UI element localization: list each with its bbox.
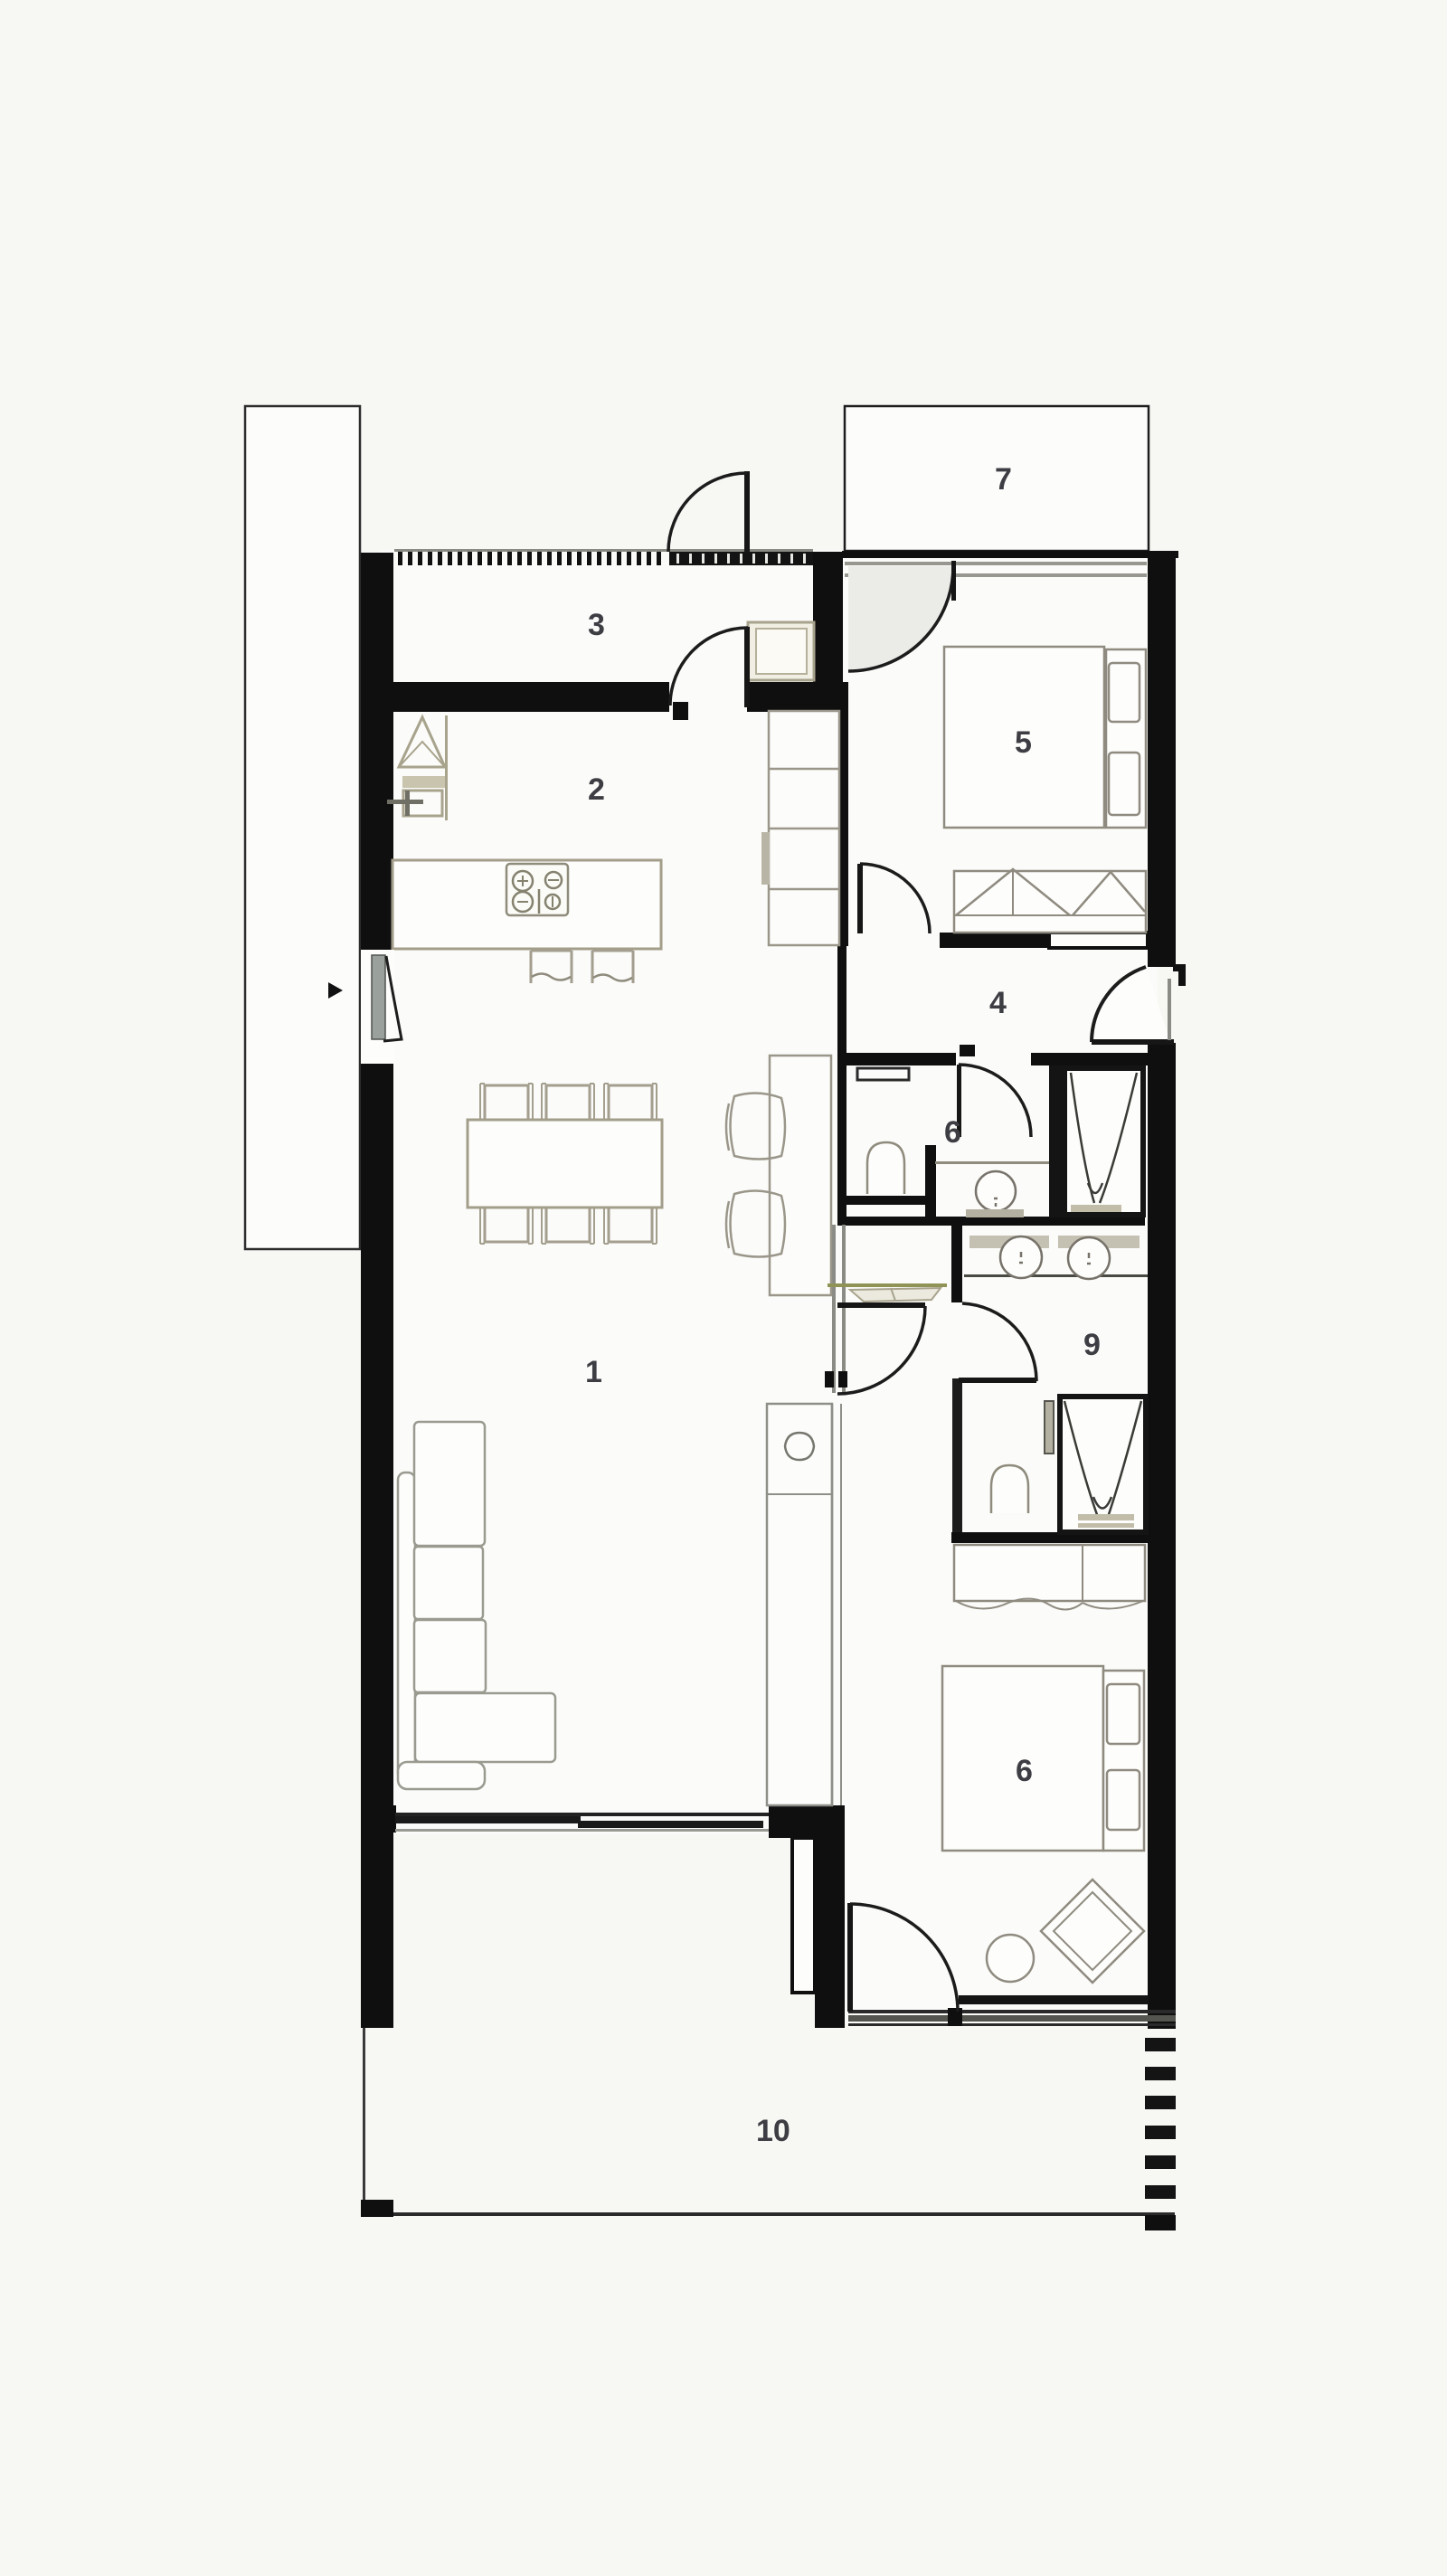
svg-text:6: 6 <box>1016 1754 1033 1788</box>
svg-text:7: 7 <box>995 462 1012 497</box>
svg-text:2: 2 <box>588 772 605 807</box>
svg-text:6: 6 <box>944 1115 961 1150</box>
svg-text:3: 3 <box>588 608 605 642</box>
svg-text:1: 1 <box>585 1355 602 1389</box>
svg-text:5: 5 <box>1015 725 1032 760</box>
svg-text:9: 9 <box>1083 1328 1101 1362</box>
svg-text:4: 4 <box>989 986 1007 1020</box>
svg-text:10: 10 <box>756 2114 790 2148</box>
